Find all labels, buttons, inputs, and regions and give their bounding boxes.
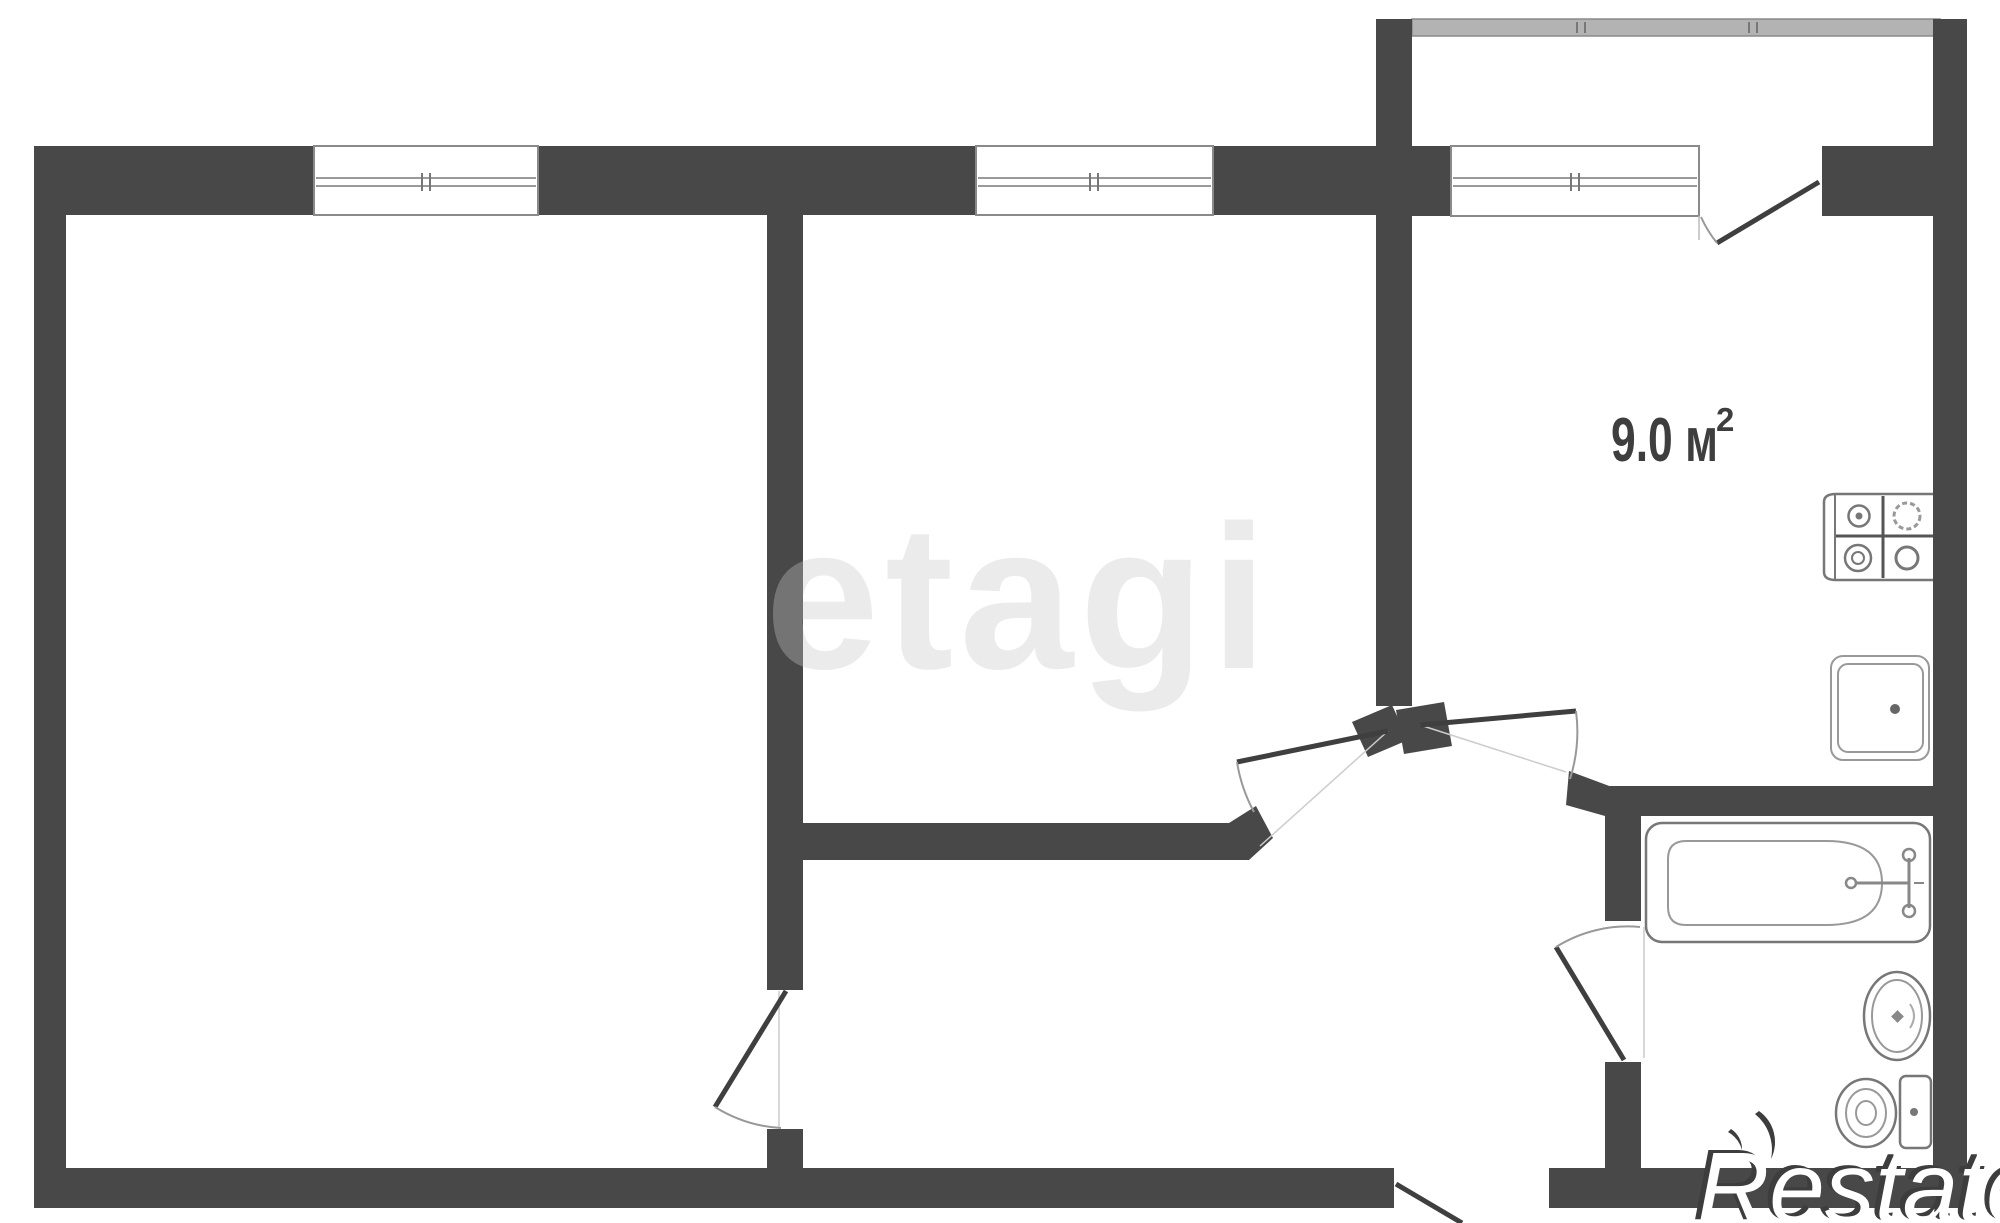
svg-text:Restate: Restate [1697, 1132, 2000, 1223]
svg-text:9.0 м: 9.0 м [1611, 406, 1718, 475]
svg-text:etagi: etagi [765, 483, 1273, 712]
svg-text:2: 2 [1716, 401, 1734, 438]
